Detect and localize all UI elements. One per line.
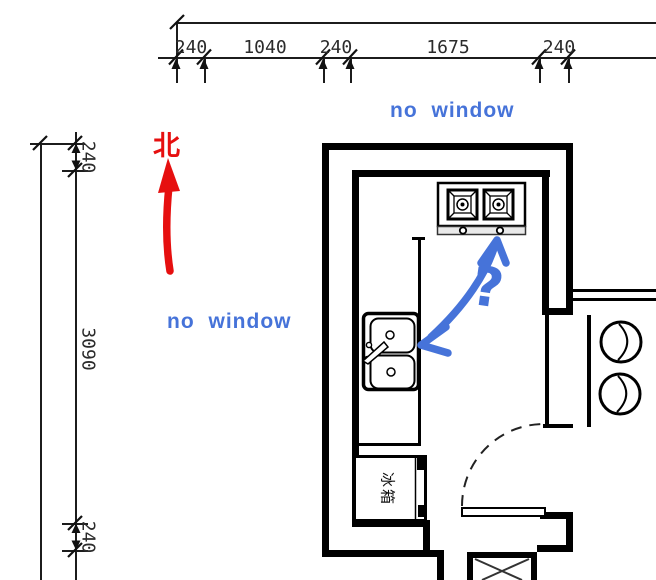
stove bbox=[438, 183, 526, 235]
no-window-label-top: no window bbox=[390, 99, 514, 123]
shaft-cross-lines bbox=[475, 559, 529, 580]
plan-graphics bbox=[0, 0, 656, 580]
fridge-hinge-mark bbox=[417, 458, 425, 470]
kitchen-floor-plan: 240 1040 240 1675 240 240 3090 240 北 no … bbox=[0, 0, 656, 580]
door-leaf bbox=[462, 508, 545, 516]
stove-control-strip bbox=[438, 227, 526, 235]
door bbox=[462, 424, 545, 516]
fridge-label: 冰箱 bbox=[378, 472, 399, 506]
arrowhead-icon bbox=[421, 327, 448, 353]
dim-label-top: 1040 bbox=[243, 37, 286, 58]
dim-label-top: 240 bbox=[543, 37, 576, 58]
dim-label-top: 240 bbox=[320, 37, 353, 58]
stove-knob-icon bbox=[497, 227, 503, 233]
sink bbox=[363, 314, 419, 390]
round-fixture-icon bbox=[601, 322, 641, 362]
north-label: 北 bbox=[153, 124, 180, 163]
drain-icon bbox=[387, 368, 395, 376]
drain-icon bbox=[386, 331, 394, 339]
dimension-ticks-top bbox=[169, 15, 575, 65]
north-arrow-icon bbox=[158, 158, 180, 271]
door-swing-arc bbox=[462, 424, 544, 506]
dim-label-left: 240 bbox=[78, 521, 99, 554]
dim-label-left: 240 bbox=[78, 141, 99, 174]
dimension-ticks-left bbox=[33, 136, 82, 557]
dim-label-left: 3090 bbox=[78, 327, 99, 370]
fridge-hinge-mark bbox=[418, 505, 425, 517]
no-window-label-left: no window bbox=[167, 310, 291, 334]
dim-label-top: 240 bbox=[175, 37, 208, 58]
dimension-arrows-top bbox=[172, 59, 573, 70]
round-fixture-icon bbox=[600, 374, 640, 414]
stove-knob-icon bbox=[460, 227, 466, 233]
faucet-icon bbox=[366, 342, 371, 347]
dim-label-top: 1675 bbox=[426, 37, 469, 58]
